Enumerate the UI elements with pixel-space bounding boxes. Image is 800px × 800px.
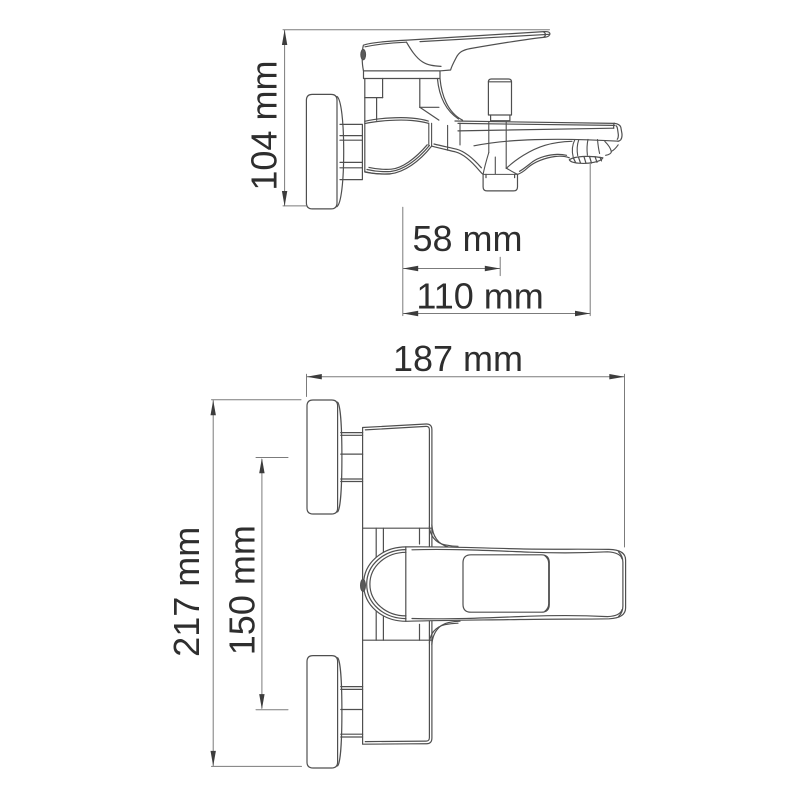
svg-text:110 mm: 110 mm <box>416 276 543 317</box>
svg-text:187 mm: 187 mm <box>393 338 523 379</box>
svg-text:150 mm: 150 mm <box>221 525 262 655</box>
svg-text:217 mm: 217 mm <box>166 527 207 657</box>
svg-text:104 mm: 104 mm <box>243 61 284 191</box>
svg-text:58 mm: 58 mm <box>412 218 522 259</box>
